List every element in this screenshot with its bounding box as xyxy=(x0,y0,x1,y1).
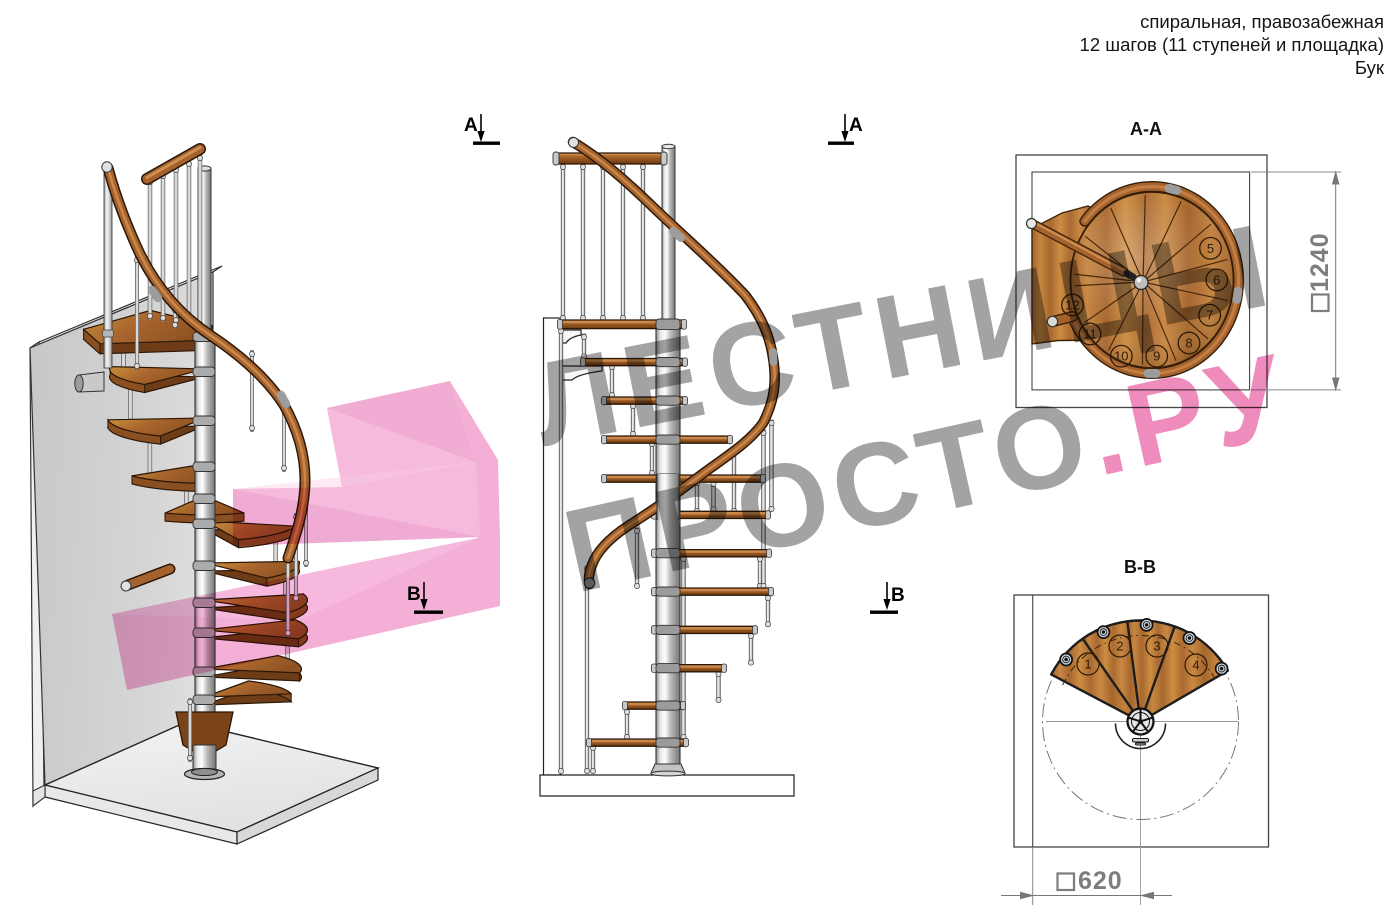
svg-text:1: 1 xyxy=(1084,657,1091,672)
svg-text:3: 3 xyxy=(1153,639,1160,654)
svg-text:B-B: B-B xyxy=(1124,557,1156,577)
svg-text:2: 2 xyxy=(1116,639,1123,654)
svg-text:A: A xyxy=(849,115,863,136)
svg-text:620: 620 xyxy=(1078,867,1123,895)
svg-text:A: A xyxy=(464,115,478,136)
svg-text:Бук: Бук xyxy=(1355,57,1385,78)
svg-text:A-A: A-A xyxy=(1130,119,1162,139)
svg-text:B: B xyxy=(407,584,421,605)
svg-text:1240: 1240 xyxy=(1306,232,1334,292)
svg-text:B: B xyxy=(891,585,905,606)
svg-text:спиральная, правозабежная: спиральная, правозабежная xyxy=(1140,11,1384,32)
svg-text:12 шагов (11 ступеней и площад: 12 шагов (11 ступеней и площадка) xyxy=(1080,34,1384,55)
svg-text:4: 4 xyxy=(1192,658,1199,673)
